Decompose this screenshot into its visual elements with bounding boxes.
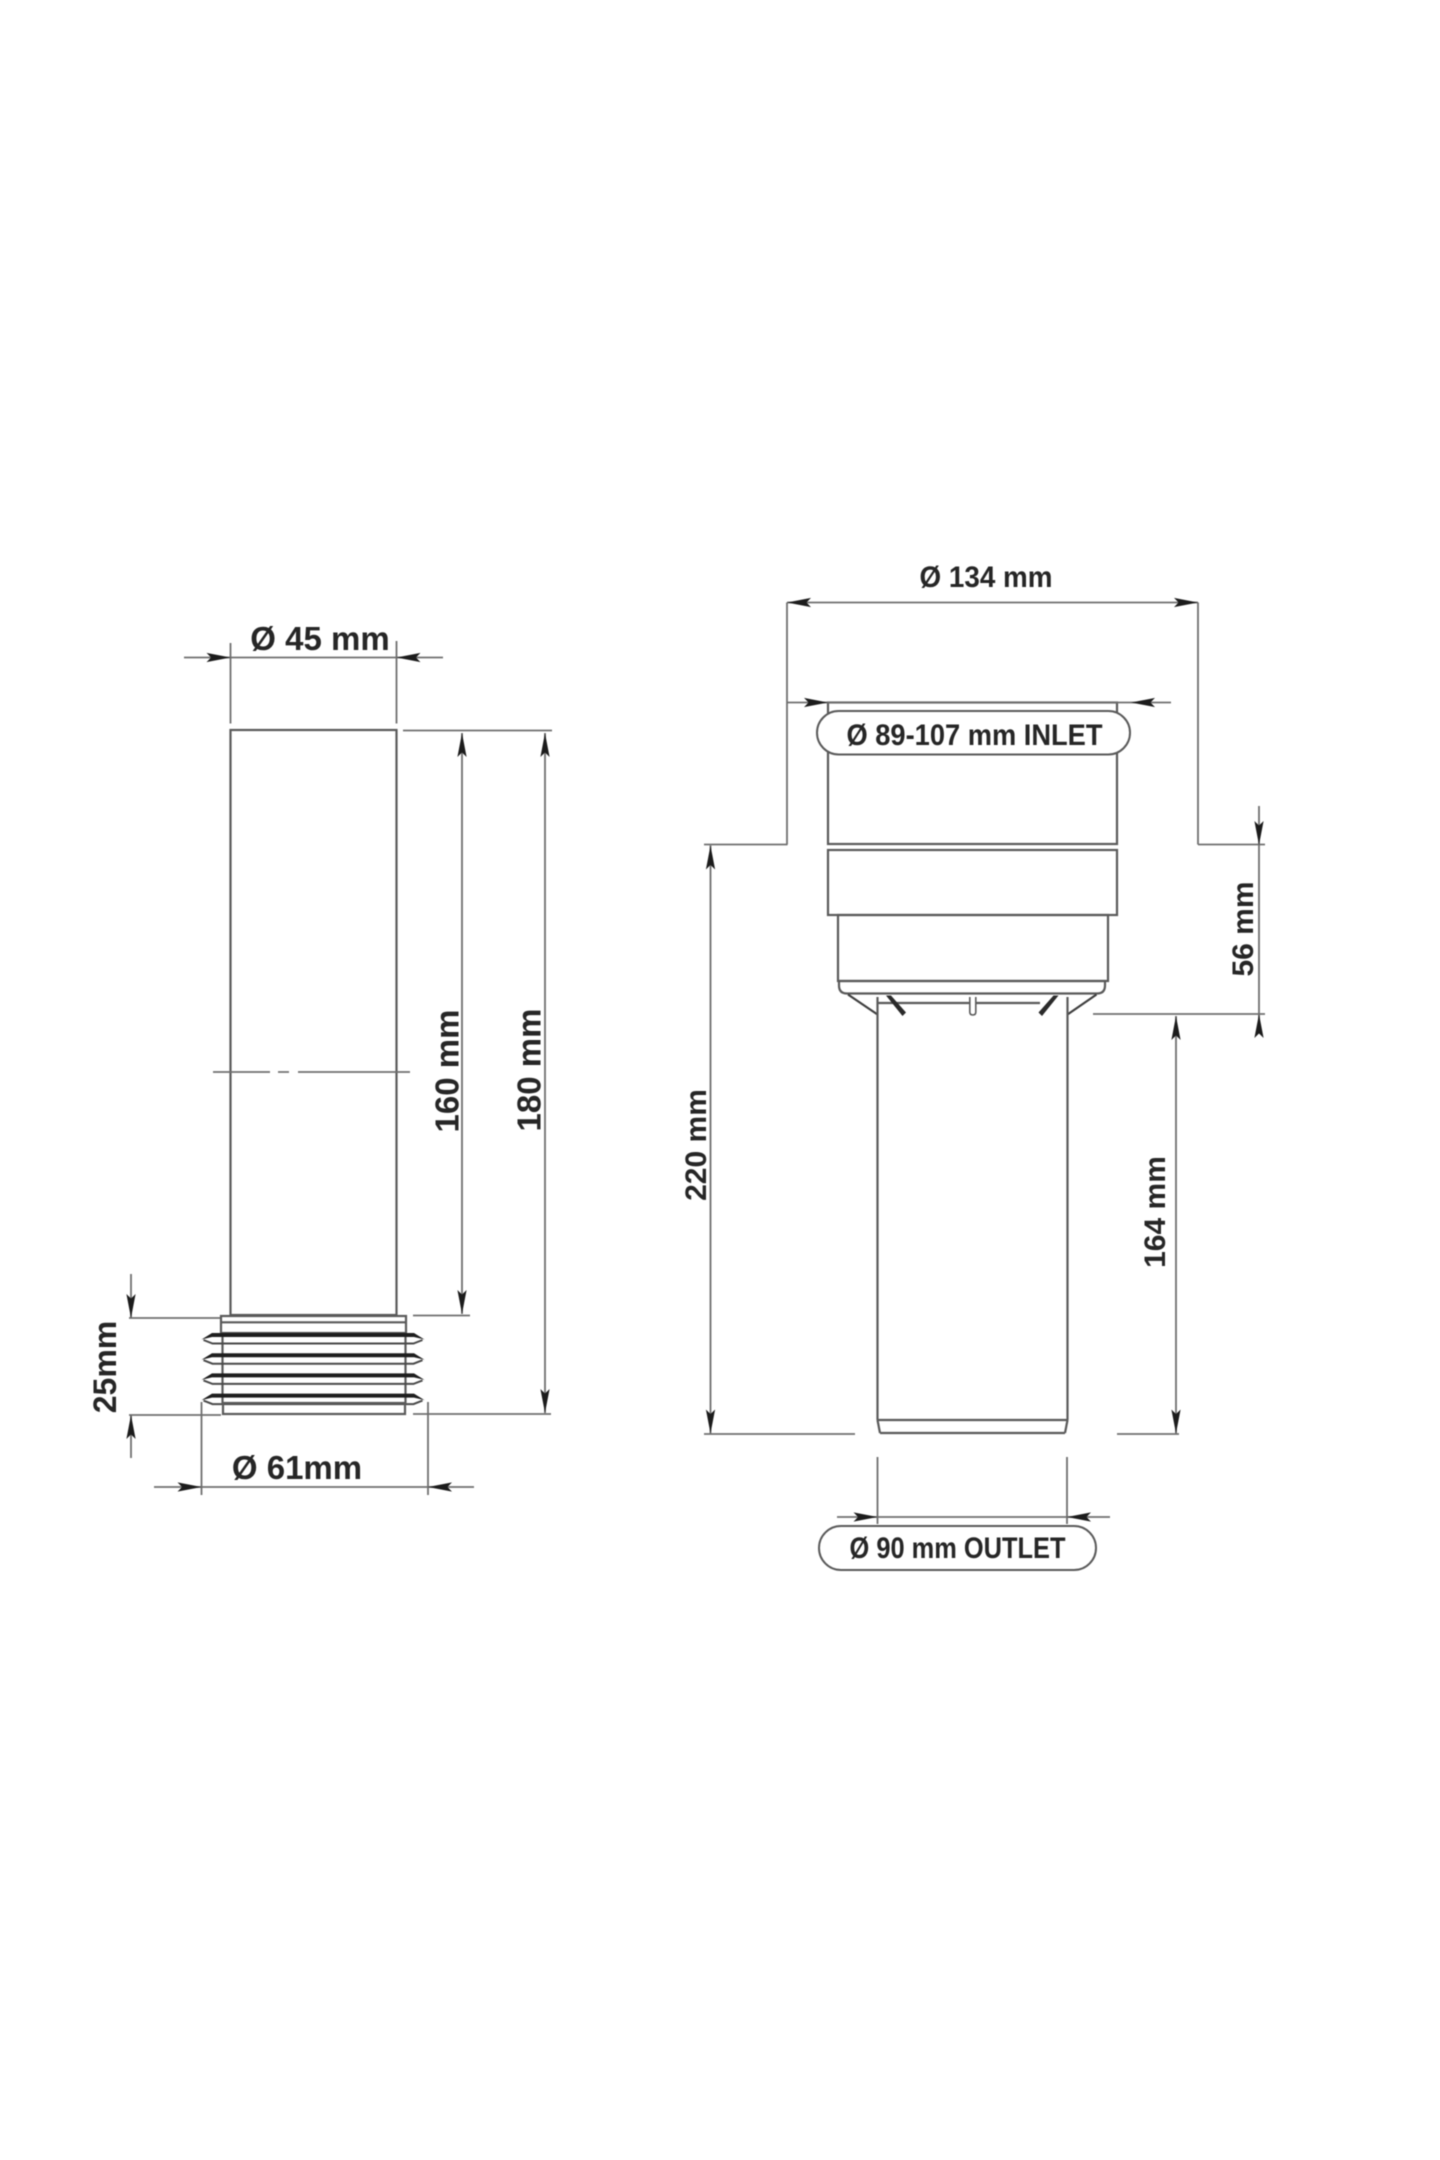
svg-text:Ø 61mm: Ø 61mm — [232, 1449, 362, 1486]
svg-text:180 mm: 180 mm — [511, 1009, 548, 1132]
svg-text:Ø 134 mm: Ø 134 mm — [920, 561, 1053, 594]
svg-text:160 mm: 160 mm — [429, 1010, 466, 1133]
svg-text:220 mm: 220 mm — [680, 1089, 713, 1201]
svg-text:56 mm: 56 mm — [1227, 881, 1260, 976]
svg-text:Ø 90 mm OUTLET: Ø 90 mm OUTLET — [850, 1532, 1066, 1565]
svg-text:Ø 89-107 mm INLET: Ø 89-107 mm INLET — [847, 719, 1103, 752]
svg-text:25mm: 25mm — [87, 1321, 123, 1414]
svg-text:164 mm: 164 mm — [1139, 1156, 1172, 1268]
svg-text:Ø 45 mm: Ø 45 mm — [250, 620, 389, 657]
